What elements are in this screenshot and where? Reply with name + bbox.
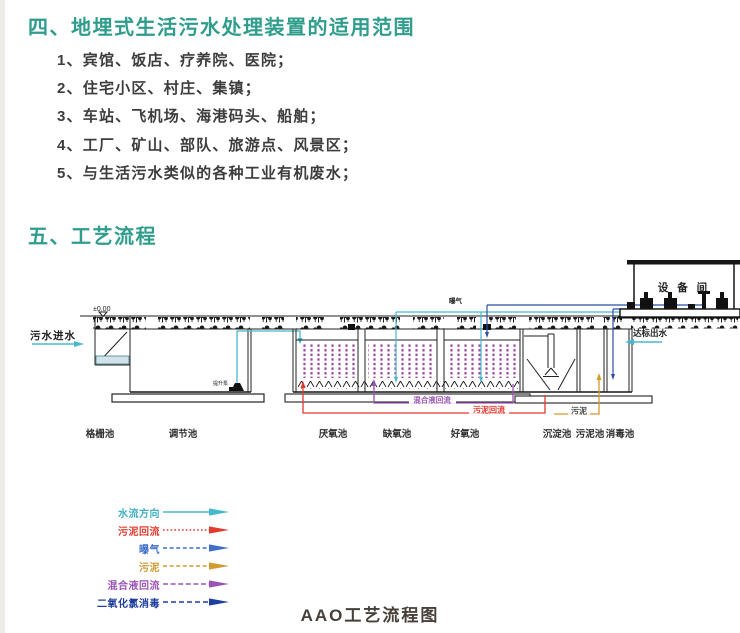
lift-pump-label: 提升泵 xyxy=(213,380,228,387)
aeration-arrow-icon xyxy=(163,543,229,553)
legend-label: 混合液回流 xyxy=(86,577,160,592)
tank-labels: 格栅池 调节池 厌氧池 缺氧池 好氧池 沉淀池 污泥池 消毒池 xyxy=(86,428,635,440)
mixed-liquor-return-label: 混合液回流 xyxy=(413,395,451,405)
outlet-arrow: 达标出水 xyxy=(625,328,667,345)
filler-media xyxy=(447,344,517,378)
settling-tank xyxy=(524,329,580,392)
process-flow-diagram: ±0.00 污水进水 提升泵 xyxy=(0,252,740,462)
mixed-liquor-arrow-icon xyxy=(163,579,229,589)
filler-media xyxy=(299,344,355,378)
section5-heading: 五、工艺流程 xyxy=(28,220,157,249)
legend-item-sludge: 污泥 xyxy=(86,557,229,575)
inlet-label: 污水进水 xyxy=(30,329,76,342)
sludge-arrow-icon xyxy=(163,561,229,571)
lift-pump-icon xyxy=(229,383,244,391)
application-list: 1、宾馆、饭店、疗养院、医院； 2、住宅小区、村庄、集镇； 3、车站、飞机场、海… xyxy=(57,45,358,187)
legend-label: 水流方向 xyxy=(86,505,160,520)
water-flow-arrow-icon xyxy=(163,507,229,517)
regulation-tank: 提升泵 xyxy=(112,329,303,402)
sludge-return-arrow-icon xyxy=(163,525,229,535)
tank-label: 格栅池 xyxy=(86,428,115,440)
level-marker: ±0.00 xyxy=(93,306,111,317)
sludge-pipe-line: 污泥 xyxy=(554,373,602,416)
legend-label: 污泥回流 xyxy=(86,523,160,538)
tank-label: 污泥池 xyxy=(576,428,605,440)
diffuser-row xyxy=(298,381,519,389)
legend-item-sludge-return: 污泥回流 xyxy=(86,521,229,539)
filler-media xyxy=(368,344,434,378)
legend-label: 曝气 xyxy=(86,541,160,556)
inlet-arrow: 污水进水 xyxy=(30,329,84,347)
legend: 水流方向 污泥回流 曝气 污泥 混合液回流 xyxy=(86,503,229,611)
sludge-pipe-label: 污泥 xyxy=(571,406,587,416)
list-item: 3、车站、飞机场、海港码头、船舶； xyxy=(57,102,358,130)
aeration-label: 曝气 xyxy=(449,296,463,305)
equipment-room: 设 备 间 xyxy=(618,260,740,318)
legend-label: 污泥 xyxy=(86,559,160,574)
page: 四、地埋式生活污水处理装置的适用范围 1、宾馆、饭店、疗养院、医院； 2、住宅小… xyxy=(0,0,740,633)
list-item: 1、宾馆、饭店、疗养院、医院； xyxy=(57,45,358,73)
tank-label: 缺氧池 xyxy=(382,428,412,440)
tank-label: 厌氧池 xyxy=(319,428,348,440)
tank-label: 沉淀池 xyxy=(543,428,572,440)
legend-item-water-flow: 水流方向 xyxy=(86,503,229,521)
valve-icon xyxy=(348,324,355,330)
tank-label: 调节池 xyxy=(169,428,198,440)
tank-label: 好氧池 xyxy=(450,428,480,440)
sludge-return-label: 污泥回流 xyxy=(473,405,505,415)
legend-item-mixed-liquor-return: 混合液回流 xyxy=(86,575,229,593)
section4-heading: 四、地埋式生活污水处理装置的适用范围 xyxy=(28,11,415,40)
tank-label: 消毒池 xyxy=(606,428,635,440)
list-item: 5、与生活污水类似的各种工业有机废水； xyxy=(57,159,358,187)
outlet-label: 达标出水 xyxy=(633,328,668,338)
diagram-caption: AAO工艺流程图 xyxy=(0,601,740,626)
legend-item-aeration: 曝气 xyxy=(86,539,229,557)
list-item: 2、住宅小区、村庄、集镇； xyxy=(57,73,358,101)
list-item: 4、工厂、矿山、部队、旅游点、风景区； xyxy=(57,130,358,158)
